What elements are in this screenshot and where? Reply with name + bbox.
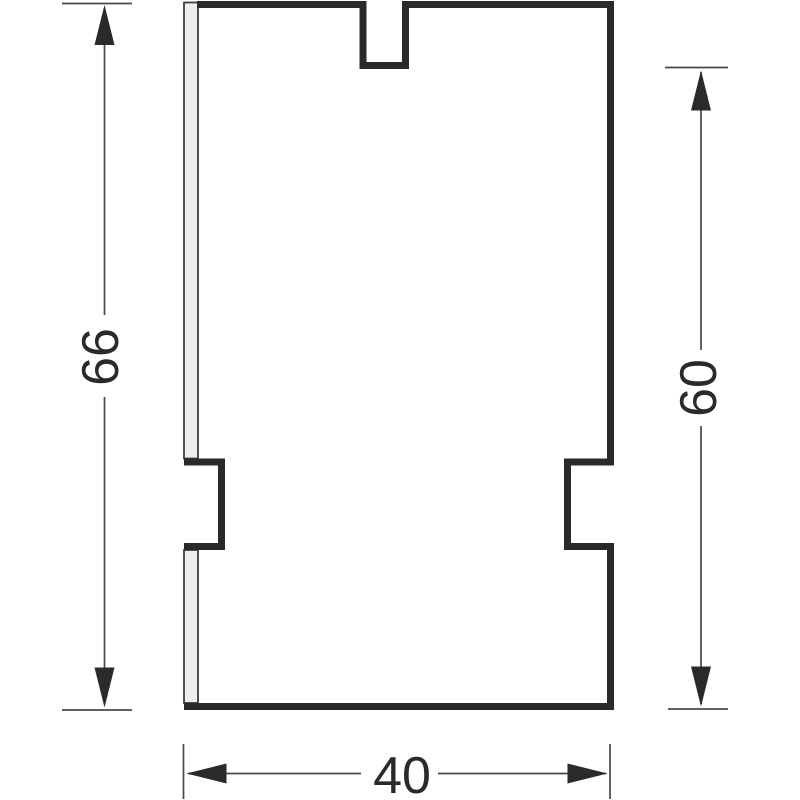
glazing-strip-lower xyxy=(184,550,198,703)
part-left-notch-outline xyxy=(184,462,222,547)
part-outline xyxy=(184,5,611,707)
drawing-svg: 66 60 40 xyxy=(0,0,800,800)
dimension-label-partial-height: 60 xyxy=(670,359,728,417)
dimension-width: 40 xyxy=(184,744,611,800)
arrow-left-icon xyxy=(187,764,227,784)
technical-drawing: 66 60 40 xyxy=(0,0,800,800)
arrow-up-icon xyxy=(691,71,711,111)
arrow-up-icon xyxy=(95,5,115,45)
arrow-right-icon xyxy=(568,764,608,784)
glazing-strip-upper xyxy=(184,3,198,459)
dimension-label-total-height: 66 xyxy=(72,328,130,386)
dimension-partial-height: 60 xyxy=(665,68,728,710)
glazing-strip xyxy=(184,3,198,704)
dimension-total-height: 66 xyxy=(62,4,132,711)
arrow-down-icon xyxy=(95,668,115,708)
arrow-down-icon xyxy=(691,667,711,707)
dimension-label-width: 40 xyxy=(373,747,431,800)
